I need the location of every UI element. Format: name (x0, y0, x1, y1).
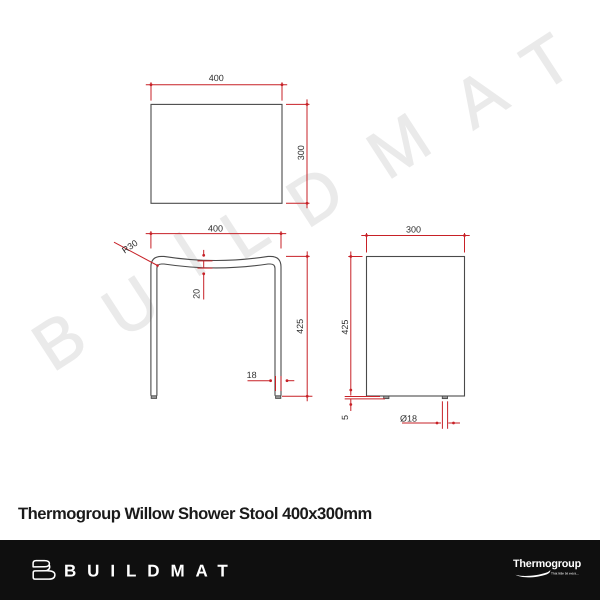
svg-text:That little bit extra...: That little bit extra... (551, 572, 579, 576)
svg-text:300: 300 (296, 145, 306, 160)
svg-text:400: 400 (208, 223, 223, 233)
svg-text:400: 400 (209, 73, 224, 83)
svg-text:5: 5 (340, 415, 350, 420)
svg-text:20: 20 (192, 289, 202, 299)
svg-text:18: 18 (247, 370, 257, 380)
svg-text:Thermogroup Willow Shower Stoo: Thermogroup Willow Shower Stool 400x300m… (18, 504, 372, 523)
svg-text:300: 300 (406, 225, 421, 235)
svg-text:425: 425 (340, 320, 350, 335)
svg-text:425: 425 (295, 319, 305, 334)
svg-text:Ø18: Ø18 (400, 413, 417, 423)
svg-text:BUILDMAT: BUILDMAT (64, 562, 239, 581)
svg-text:Thermogroup: Thermogroup (513, 558, 582, 570)
